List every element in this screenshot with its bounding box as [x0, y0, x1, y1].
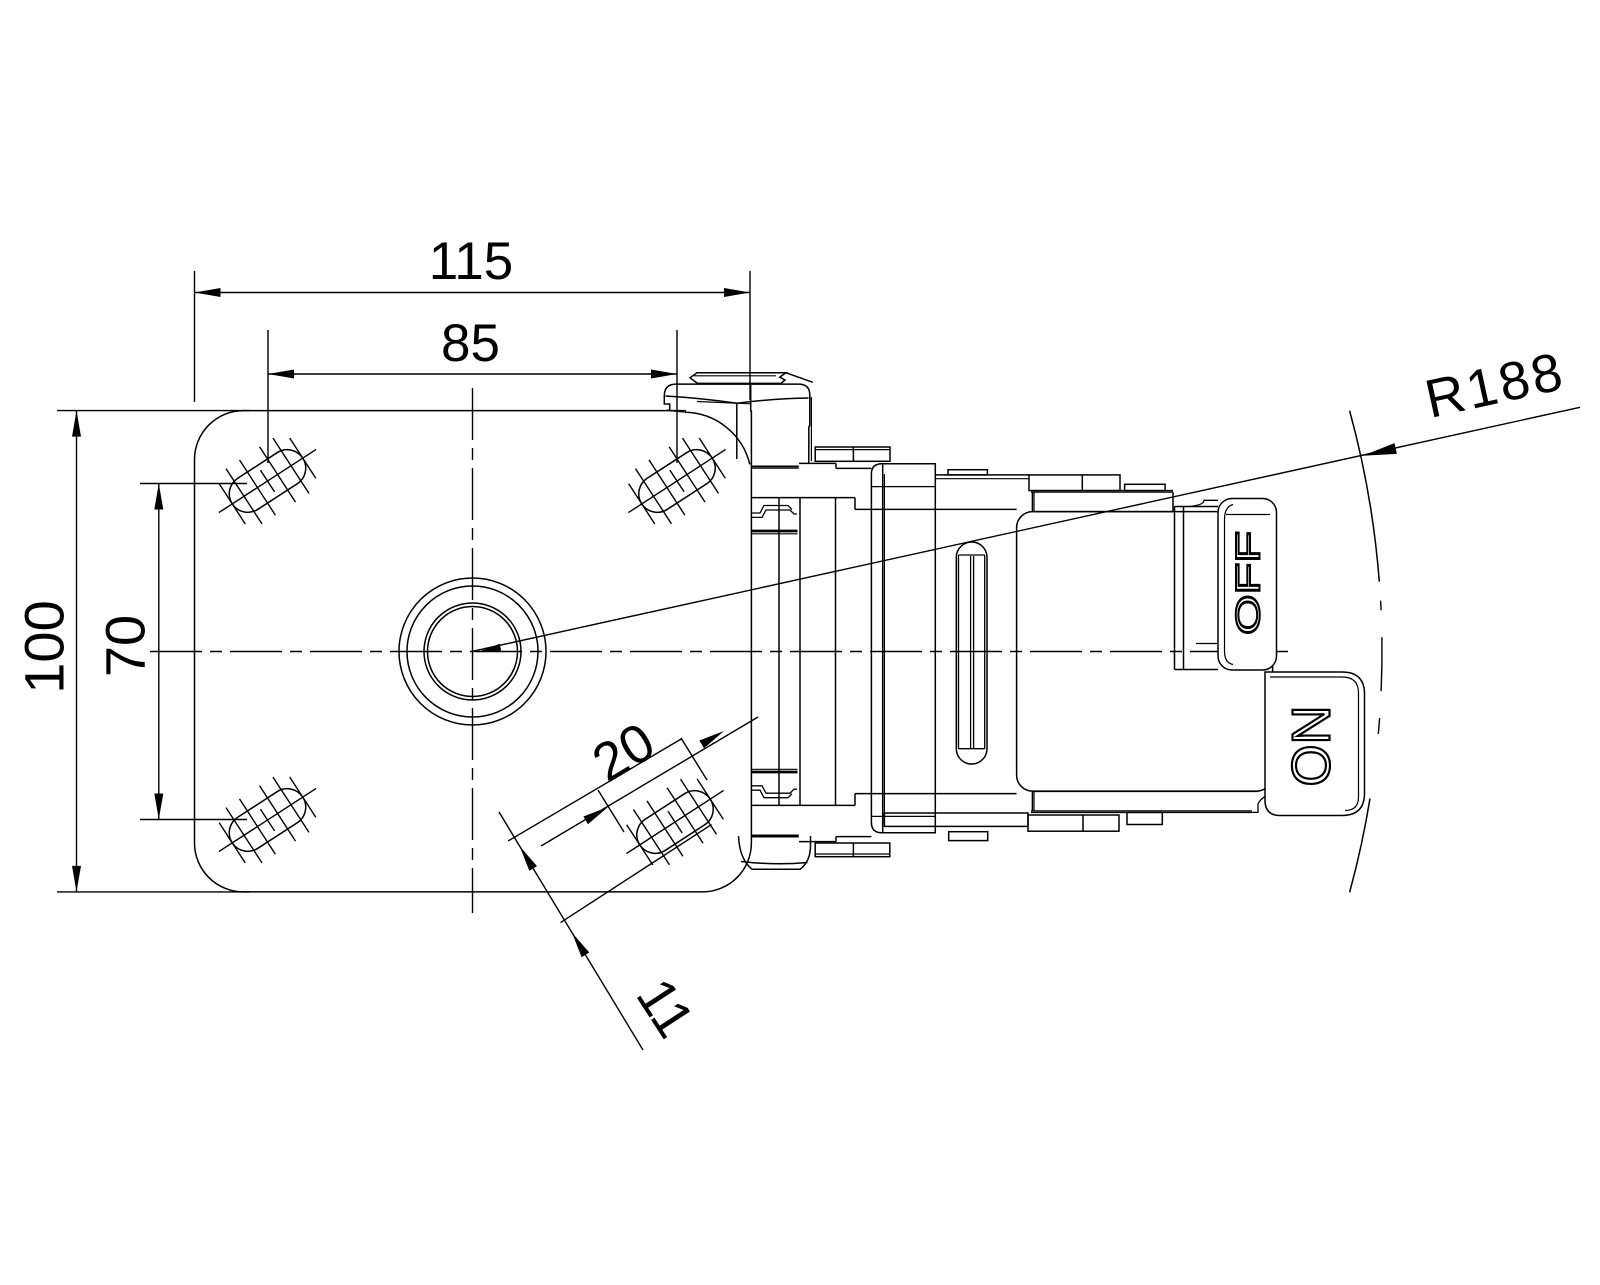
svg-text:ON: ON	[1282, 706, 1342, 787]
svg-text:85: 85	[441, 314, 500, 373]
svg-text:70: 70	[94, 615, 157, 677]
svg-text:115: 115	[429, 232, 514, 291]
svg-text:100: 100	[13, 600, 76, 693]
svg-text:OFF: OFF	[1230, 531, 1268, 635]
